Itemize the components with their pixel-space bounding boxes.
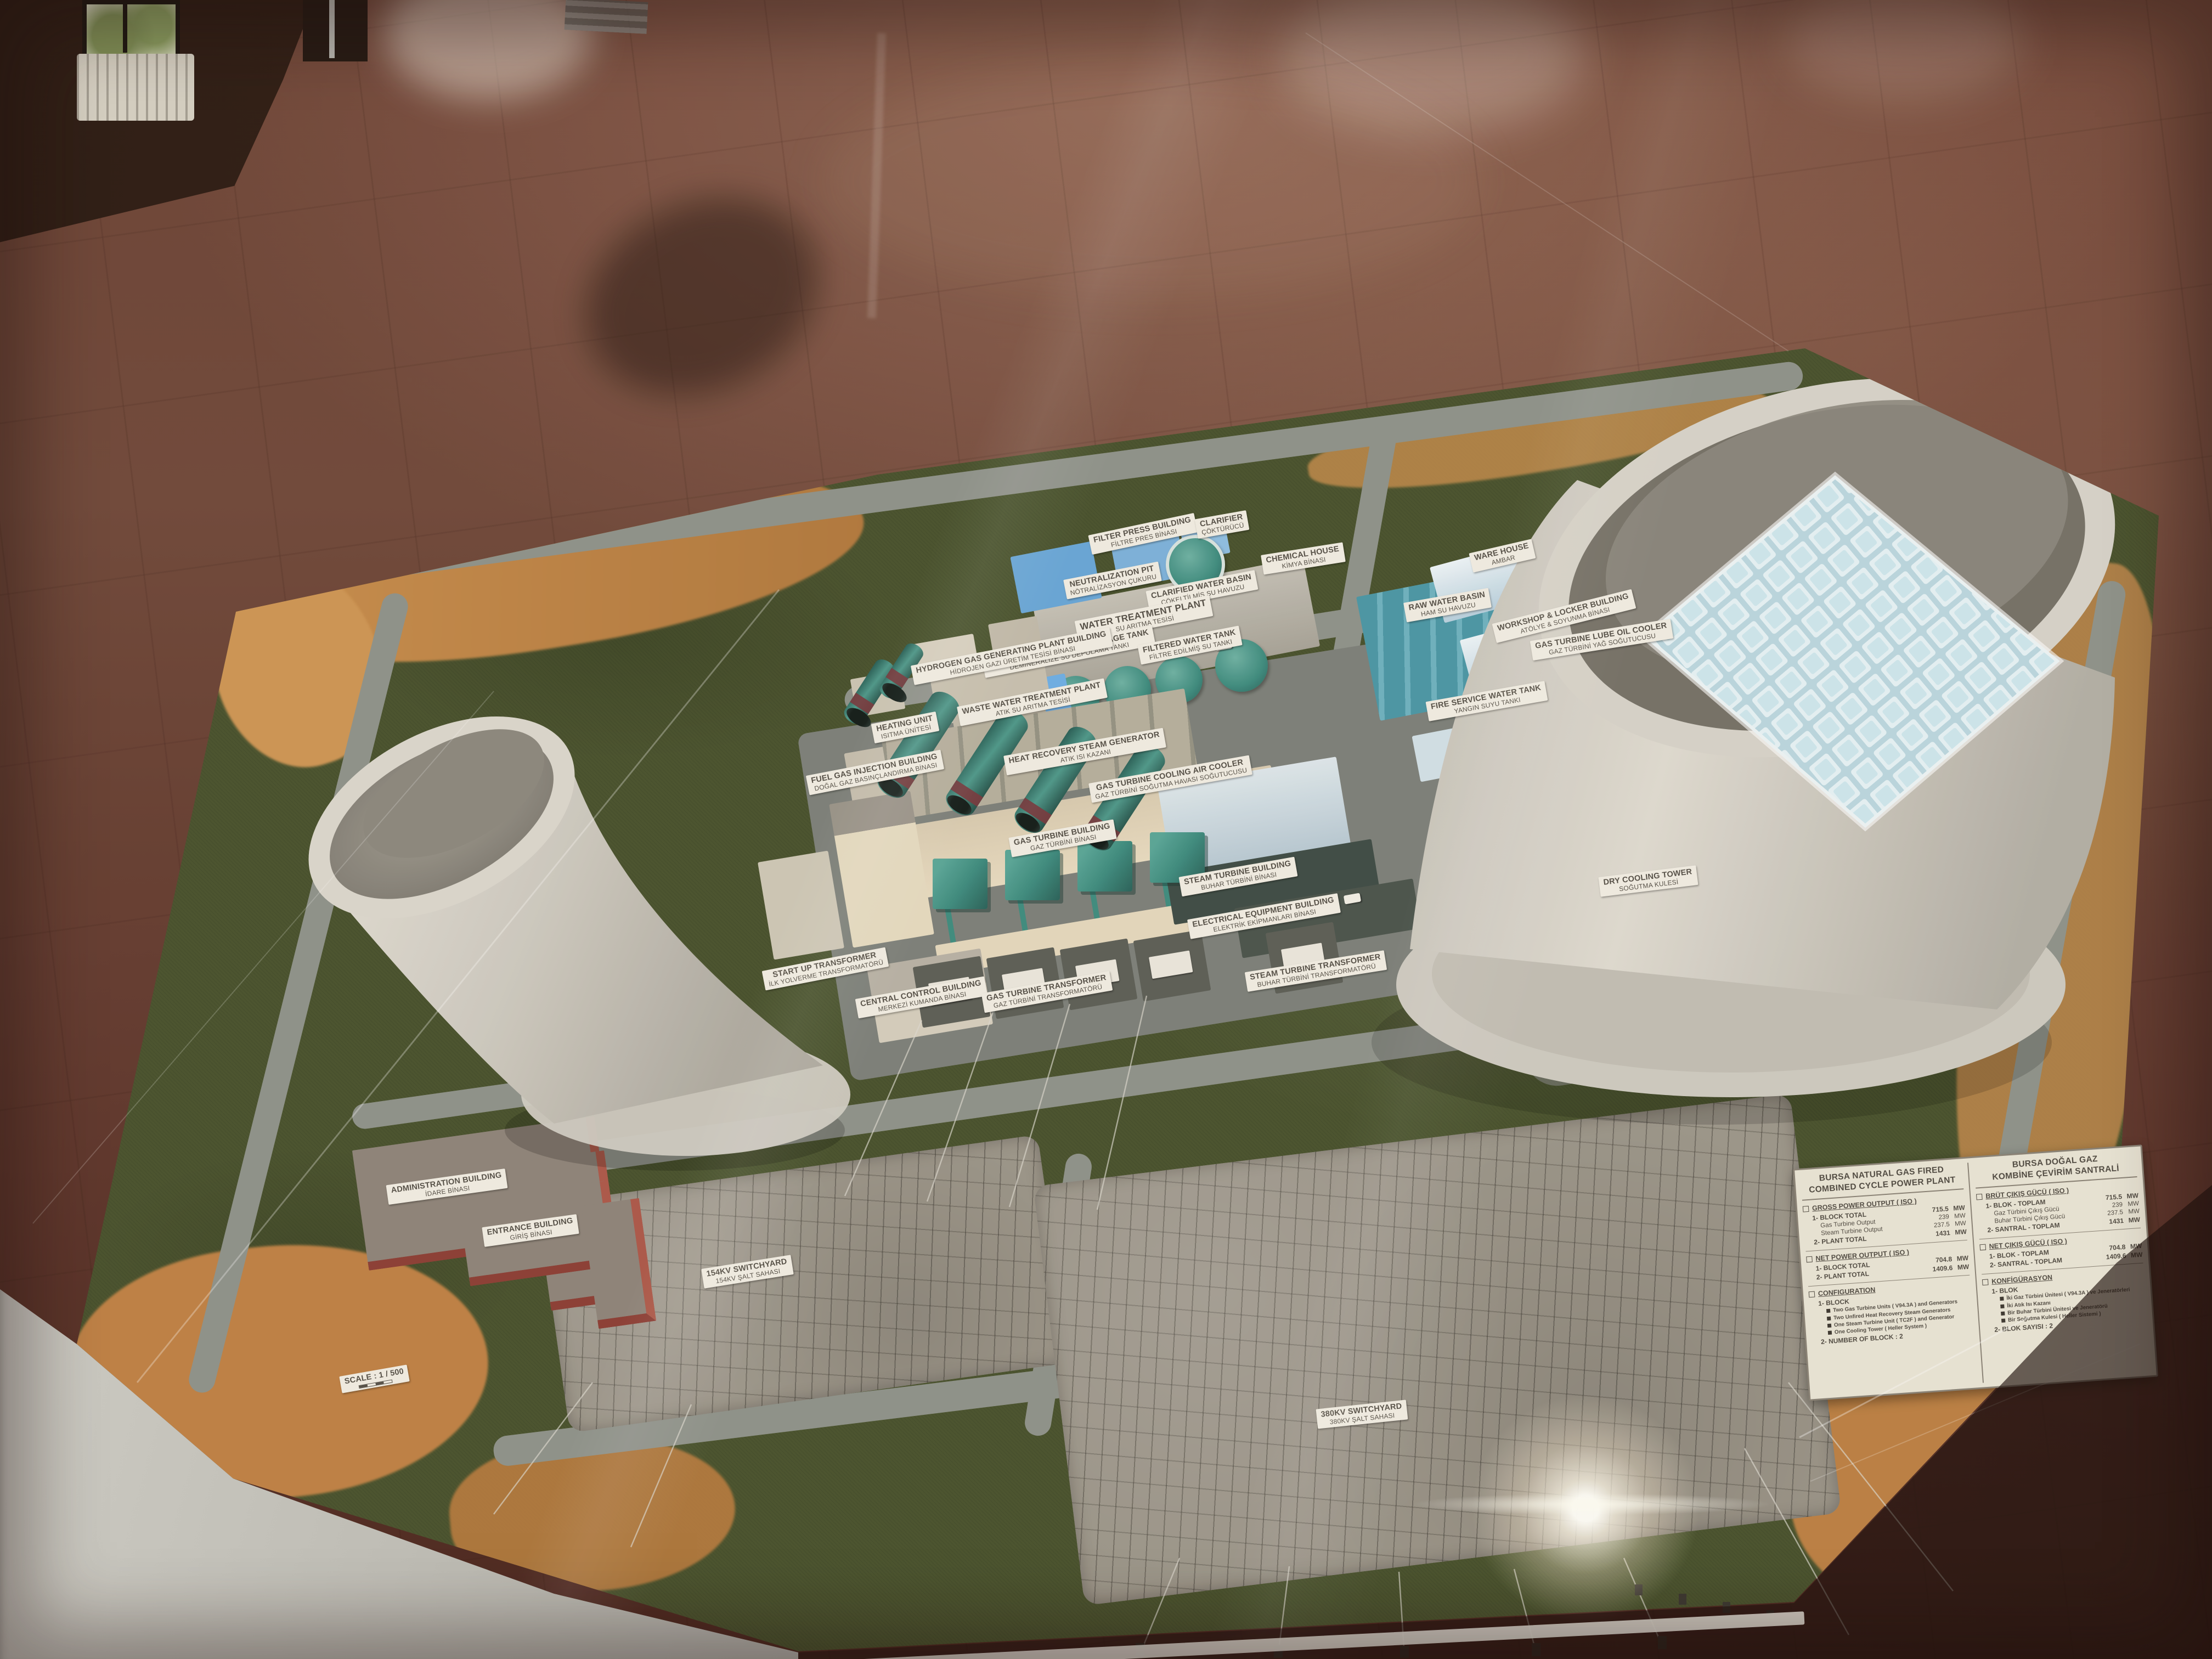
configuration-section-en: CONFIGURATION 1- BLOCK Two Gas Turbine U…	[1808, 1275, 1974, 1347]
checkbox-icon	[1809, 1291, 1815, 1297]
placard-column-turkish: BURSA DOĞAL GAZ KOMBİNE ÇEVİRİM SANTRALİ…	[1967, 1151, 2151, 1383]
checkbox-icon	[1976, 1194, 1983, 1200]
photo-canvas: FILTER PRESS BUILDINGFİLTRE PRES BİNASI …	[0, 0, 2212, 1659]
checkbox-icon	[1979, 1244, 1986, 1250]
checkbox-icon	[1982, 1279, 1989, 1285]
bullet-icon	[2000, 1297, 2004, 1301]
info-placard: BURSA NATURAL GAS FIRED COMBINED CYCLE P…	[1793, 1144, 2158, 1401]
bullet-icon	[1827, 1316, 1831, 1320]
gross-output-section-en: GROSS POWER OUTPUT ( ISO ) 1- BLOCK TOTA…	[1803, 1193, 1967, 1248]
placard-column-english: BURSA NATURAL GAS FIRED COMBINED CYCLE P…	[1801, 1163, 1977, 1395]
bullet-icon	[1828, 1331, 1832, 1335]
checkbox-icon	[1806, 1256, 1813, 1262]
bullet-icon	[2001, 1311, 2005, 1315]
checkbox-icon	[1803, 1206, 1809, 1212]
cooling-tower-left	[275, 675, 850, 1171]
bullet-icon	[2000, 1304, 2004, 1308]
bullet-icon	[1827, 1323, 1831, 1327]
configuration-section-tr: KONFİGÜRASYON 1- BLOK İki Gaz Türbini Ün…	[1982, 1263, 2147, 1335]
bullet-icon	[1826, 1309, 1830, 1313]
bullet-icon	[2001, 1318, 2005, 1322]
gross-output-section-tr: BRÜT ÇIKIŞ GÜCÜ ( ISO ) 1- BLOK - TOPLAM…	[1976, 1181, 2141, 1235]
